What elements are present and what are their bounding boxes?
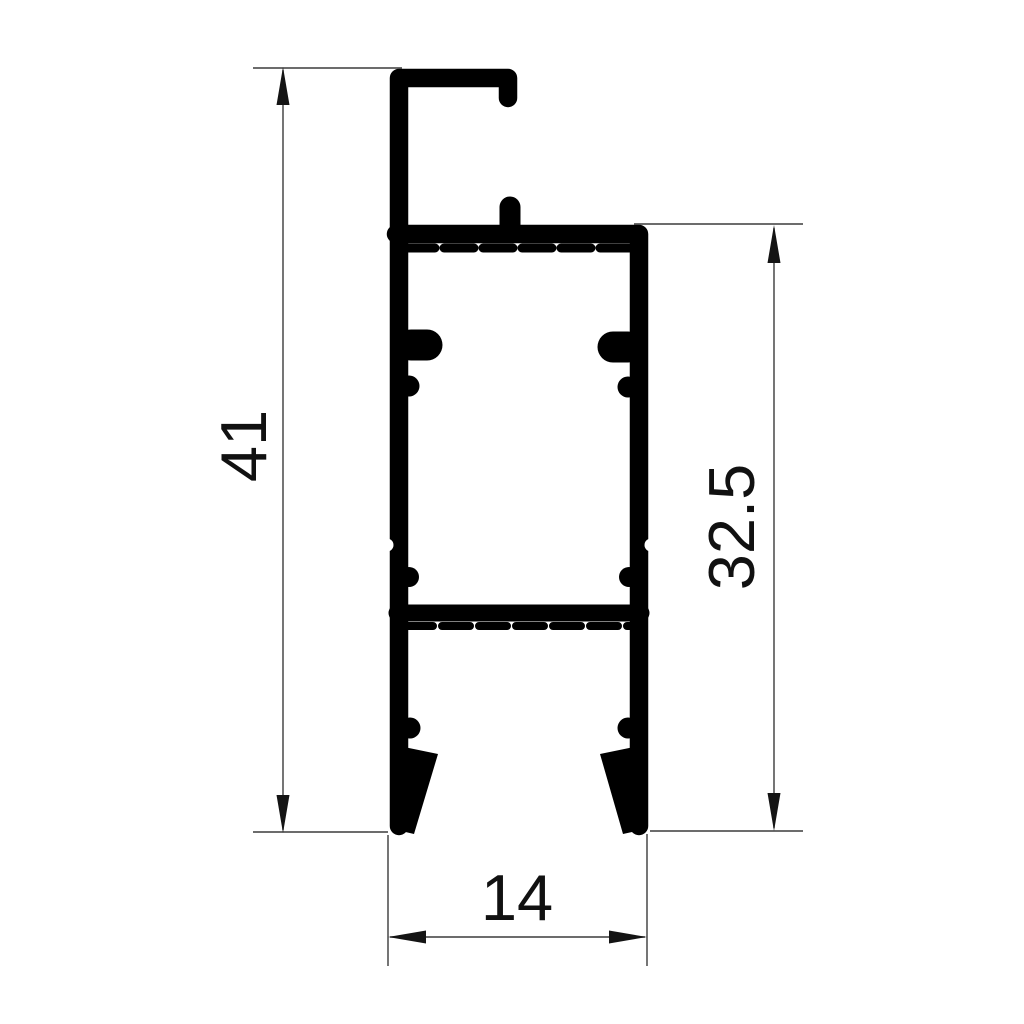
profile-bump-left-middle	[399, 567, 419, 587]
profile-drawing: 41 32.5 14	[0, 0, 1024, 1024]
arrowhead-down-icon	[768, 793, 781, 831]
profile-frame-path	[396, 234, 639, 826]
profile-bump-left-lower	[400, 718, 421, 739]
arrowhead-right-icon	[609, 931, 647, 944]
profile-notch-right	[645, 539, 658, 552]
profile-bump-right-middle	[619, 567, 639, 587]
technical-drawing-page: 41 32.5 14	[0, 0, 1024, 1024]
profile-bump-left-upper	[399, 376, 420, 397]
profile-cross-section	[381, 78, 658, 834]
profile-walls	[396, 78, 641, 826]
arrowhead-left-icon	[388, 931, 426, 944]
dimension-label-total-height: 41	[207, 410, 280, 482]
dimension-total-height: 41	[207, 67, 402, 833]
arrowhead-up-icon	[277, 67, 290, 105]
dimension-bottom-width: 14	[388, 834, 647, 966]
profile-hook-path	[399, 78, 508, 826]
dimension-label-bottom-width: 14	[481, 861, 553, 934]
profile-bump-right-lower	[618, 718, 639, 739]
arrowhead-down-icon	[277, 795, 290, 833]
arrowhead-up-icon	[768, 225, 781, 263]
dimension-label-side-height: 32.5	[695, 464, 768, 591]
profile-bump-right-upper	[618, 377, 639, 398]
profile-foot-right	[600, 747, 641, 834]
profile-foot-left	[397, 747, 438, 834]
profile-notch-left	[381, 539, 394, 552]
dimension-side-height: 32.5	[634, 224, 803, 831]
